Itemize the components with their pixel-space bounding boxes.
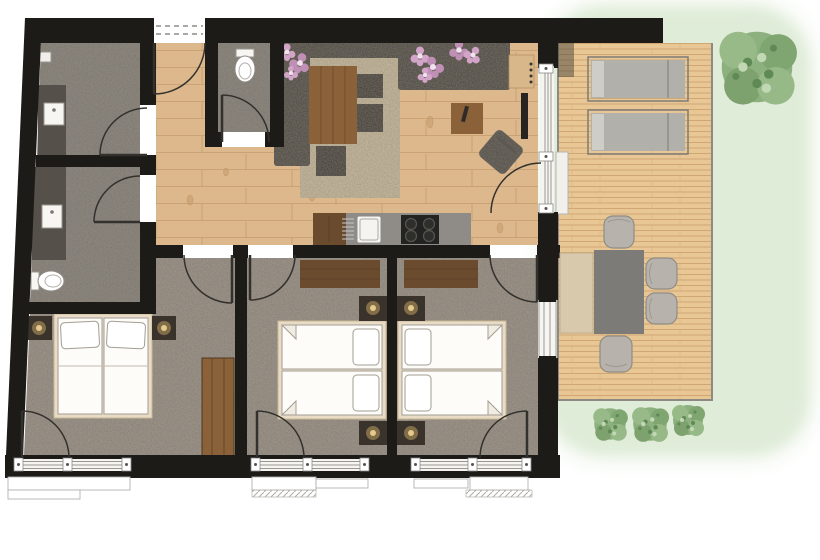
wall-bedroom-divider-1 [235,258,247,455]
wall-bath [140,222,156,314]
pillow [405,375,431,411]
bedroom-east-window [539,297,556,361]
wall-wc [205,43,218,147]
bush [593,408,628,441]
sideboard-middle [300,260,380,288]
chair [646,293,677,324]
roof-shadow [558,43,574,77]
wall-bedrooms-north [537,245,560,258]
bed-west [54,314,152,418]
lamp [408,430,414,436]
south-glazing [16,459,530,471]
sun-lounger-2 [588,110,688,154]
bed-middle [278,321,386,419]
wall-bath-south [29,302,156,314]
entrance [154,18,205,43]
pillow [353,375,379,411]
toilet-wc [235,49,255,82]
pillow [106,321,145,349]
outdoor-table [594,250,644,334]
wall-bath [140,155,156,175]
sideboard-east [404,260,478,288]
wall-east-1 [538,18,558,68]
faucet-2 [50,210,54,214]
tree [719,32,797,105]
floor-plan-drawing [0,0,820,560]
bush [632,407,669,442]
pillow [405,329,431,365]
lamp [36,325,42,331]
faucet-1 [52,108,56,112]
bush [672,405,705,436]
wall-bedrooms-north [143,245,183,258]
bench [560,253,593,333]
chair [604,216,634,248]
sill-hatch [252,490,316,497]
stool [316,146,346,176]
tv [521,93,528,139]
wall-bedrooms-north [233,245,248,258]
wall-north-right [205,18,663,43]
chair [646,258,677,289]
lounger-pillow [592,61,604,97]
pillow [353,329,379,365]
wall-wc [205,132,222,147]
floor-plan [0,0,820,560]
wall-bedroom-divider-2 [387,258,397,455]
toilet-bathroom [31,271,64,291]
wall-bedrooms-north [293,245,490,258]
sun-lounger-1 [588,57,688,101]
lounger-pillow [592,114,604,150]
kitchen [313,213,471,245]
washbasin-1 [44,103,64,125]
pillow [60,321,99,349]
lamp [161,325,167,331]
lamp [370,430,376,436]
lamp [370,305,376,311]
lamp [408,305,414,311]
wall-wc [270,43,284,147]
bed-east [398,321,506,419]
wardrobe [202,358,234,456]
wall-bath-divider [36,155,140,167]
terrace-step [556,152,568,214]
entrance-opening [154,18,205,43]
sill-hatch [466,490,532,497]
wall-north-left [36,18,154,43]
washbasin-2 [42,205,62,228]
